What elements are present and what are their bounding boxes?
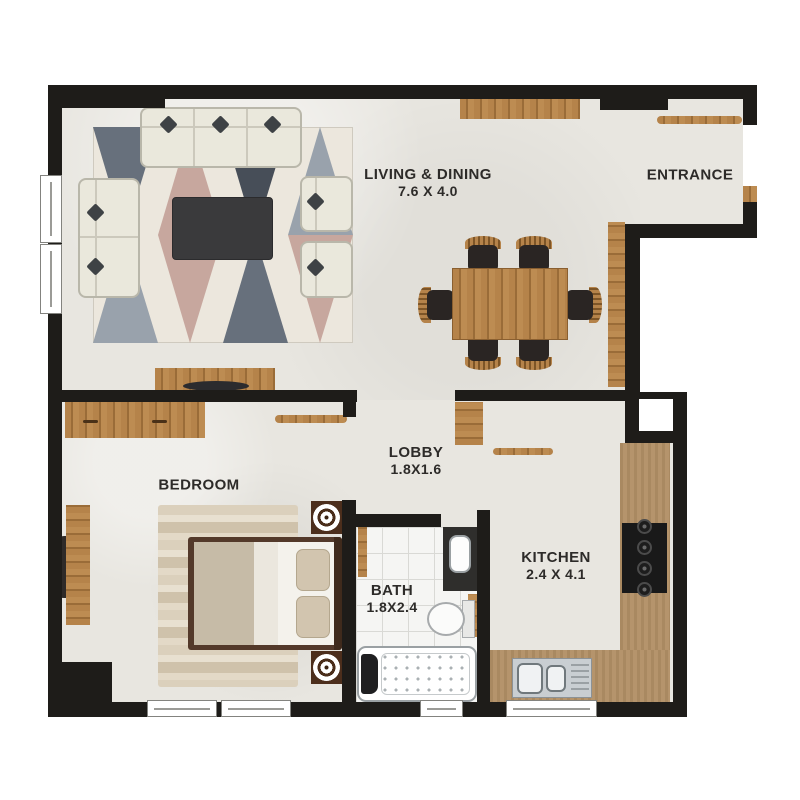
- sofa-two-seat: [78, 178, 140, 298]
- cooktop: [622, 523, 667, 593]
- entry-door: [743, 186, 757, 202]
- floor-plan: LIVING & DINING 7.6 X 4.0 ENTRANCE LOBBY…: [0, 0, 800, 800]
- sink-drainboard: [571, 664, 589, 694]
- throw-pillow-icon: [86, 257, 104, 275]
- wall-living-bedroom: [62, 390, 357, 402]
- room-dims: 1.8X2.4: [366, 599, 417, 616]
- wall-entrance-right-lower: [743, 200, 757, 226]
- throw-pillow-icon: [86, 203, 104, 221]
- armchair: [300, 176, 353, 232]
- wall-bedroom-bath: [342, 500, 356, 702]
- room-name: BEDROOM: [158, 477, 239, 494]
- throw-pillow-icon: [306, 192, 324, 210]
- sink-bowl: [546, 665, 566, 692]
- chair-seat: [566, 290, 593, 320]
- window-living-left-2: [40, 244, 62, 314]
- room-dims: 1.8X1.6: [389, 461, 444, 478]
- dining-chair: [566, 284, 602, 326]
- lobby-shelf: [275, 415, 347, 423]
- bath-door-leaf: [358, 527, 367, 577]
- toilet: [427, 602, 465, 636]
- burner-icon: [637, 561, 652, 576]
- table-lamp-icon: [313, 654, 340, 681]
- room-name: ENTRANCE: [647, 167, 734, 184]
- kitchen-sink: [512, 658, 592, 698]
- room-label-kitchen: KITCHEN 2.4 X 4.1: [521, 549, 590, 583]
- wall-top-step: [600, 99, 668, 110]
- room-name: LOBBY: [389, 444, 444, 461]
- tub-jets: [381, 653, 470, 695]
- table-lamp-icon: [313, 504, 340, 531]
- bed-pillow: [296, 549, 330, 591]
- bed-headboard: [334, 537, 342, 650]
- wall-top: [48, 85, 757, 99]
- room-name: BATH: [366, 582, 417, 599]
- shaft-opening: [639, 399, 673, 431]
- window-kitchen: [506, 700, 597, 717]
- throw-pillow-icon: [263, 115, 281, 133]
- burner-icon: [637, 540, 652, 555]
- throw-pillow-icon: [159, 115, 177, 133]
- jacuzzi-bathtub: [357, 646, 477, 702]
- room-label-living: LIVING & DINING 7.6 X 4.0: [364, 166, 492, 200]
- room-label-bedroom: BEDROOM: [158, 477, 239, 494]
- coffee-table: [172, 197, 273, 260]
- desk: [66, 505, 90, 625]
- window-living-left-1: [40, 175, 62, 243]
- wardrobe-handle-icon: [152, 420, 167, 423]
- kitchen-shelf: [493, 448, 553, 455]
- entrance-console-shelf: [657, 116, 742, 124]
- throw-pillow-icon: [211, 115, 229, 133]
- wall-entrance-right-upper: [743, 85, 757, 125]
- bed-duvet: [194, 542, 254, 645]
- wash-basin: [449, 535, 471, 573]
- nightstand: [311, 501, 342, 534]
- tall-cabinet: [608, 222, 625, 387]
- wall-kitchen-right: [673, 392, 687, 717]
- room-dims: 2.4 X 4.1: [521, 566, 590, 583]
- wall-corner-block: [48, 662, 112, 717]
- window-bedroom-2: [221, 700, 291, 717]
- bed-pillow: [296, 596, 330, 638]
- kitchen-door-leaf: [455, 402, 483, 445]
- tub-headrest: [361, 654, 378, 694]
- room-label-entrance: ENTRANCE: [647, 167, 734, 184]
- room-name: LIVING & DINING: [364, 166, 492, 183]
- room-name: KITCHEN: [521, 549, 590, 566]
- wall-entrance-bottom: [625, 224, 757, 238]
- room-label-lobby: LOBBY 1.8X1.6: [389, 444, 444, 478]
- wardrobe-handle-icon: [83, 420, 98, 423]
- sink-bowl: [517, 663, 543, 694]
- bed-sheet-fold: [254, 542, 278, 645]
- burner-icon: [637, 519, 652, 534]
- dining-chair: [462, 236, 504, 272]
- dining-chair: [418, 284, 454, 326]
- double-bed: [188, 537, 342, 650]
- wall-bath-top: [342, 514, 441, 527]
- sofa-three-seat: [140, 107, 302, 168]
- dining-chair: [513, 236, 555, 272]
- chair-seat: [427, 290, 454, 320]
- wall-dining-kitchen: [455, 390, 625, 401]
- window-bedroom-1: [147, 700, 217, 717]
- wardrobe: [65, 398, 205, 438]
- wall-bedroom-door-jamb: [343, 402, 356, 417]
- wall-bath-kitchen: [477, 510, 490, 702]
- nightstand: [311, 651, 342, 684]
- wall-top-thick: [48, 99, 165, 108]
- throw-pillow-icon: [306, 258, 324, 276]
- room-dims: 7.6 X 4.0: [364, 183, 492, 200]
- window-bath: [420, 700, 463, 717]
- wall-corridor: [625, 224, 640, 397]
- room-label-bath: BATH 1.8X2.4: [366, 582, 417, 616]
- dining-table: [452, 268, 568, 340]
- burner-icon: [637, 582, 652, 597]
- armchair: [300, 241, 353, 298]
